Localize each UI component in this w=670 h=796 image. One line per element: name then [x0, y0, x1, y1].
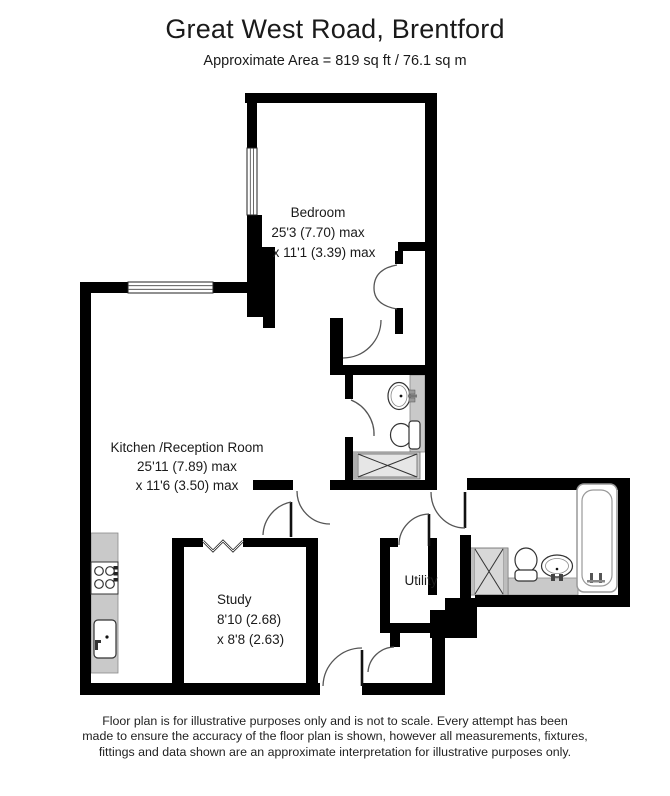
bedroom-door [343, 320, 381, 358]
wardrobe-doors [374, 265, 397, 309]
hob-icon [91, 562, 118, 594]
shower-tray-icon [350, 452, 420, 479]
disclaimer-line-2: made to ensure the accuracy of the floor… [25, 729, 645, 744]
bedroom-dim2: x 11'1 (3.39) max [273, 245, 376, 260]
kitchen-dim2: x 11'6 (3.50) max [136, 478, 239, 493]
study-folding-door [203, 541, 243, 551]
hall-doors [263, 491, 330, 537]
study-label: Study 8'10 (2.68) x 8'8 (2.63) [217, 592, 284, 647]
floor-plan: Bedroom 25'3 (7.70) max x 11'1 (3.39) ma… [0, 0, 670, 796]
bedroom-label: Bedroom 25'3 (7.70) max x 11'1 (3.39) ma… [271, 205, 375, 260]
shower-icon [470, 548, 508, 595]
disclaimer-line-3: fittings and data shown are an approxima… [25, 745, 645, 760]
kitchen-dim1: 25'11 (7.89) max [137, 459, 237, 474]
disclaimer: Floor plan is for illustrative purposes … [25, 714, 645, 760]
bathroom-door [431, 492, 465, 528]
bedroom-window [247, 148, 257, 215]
bedroom-name: Bedroom [291, 205, 346, 220]
floorplan-page: Great West Road, Brentford Approximate A… [0, 0, 670, 796]
study-name: Study [217, 592, 252, 607]
utility-name: Utility [405, 573, 438, 588]
walls [80, 93, 630, 695]
entry-door [323, 648, 362, 686]
kitchen-label: Kitchen /Reception Room 25'11 (7.89) max… [110, 440, 263, 493]
utility-door [399, 514, 429, 546]
bathtub-icon [577, 484, 617, 592]
ensuite-toilet-icon [391, 421, 421, 449]
study-dim2: x 8'8 (2.63) [217, 632, 284, 647]
bedroom-dim1: 25'3 (7.70) max [271, 225, 365, 240]
kitchen-name: Kitchen /Reception Room [110, 440, 263, 455]
basin-icon [542, 555, 573, 581]
study-dim1: 8'10 (2.68) [217, 612, 281, 627]
toilet-icon [515, 548, 537, 581]
disclaimer-line-1: Floor plan is for illustrative purposes … [25, 714, 645, 729]
utility-label: Utility [405, 573, 438, 588]
kitchen-window [128, 282, 213, 293]
kitchen-sink-icon [94, 620, 116, 658]
store-door [368, 647, 394, 672]
ensuite-door [351, 400, 374, 436]
